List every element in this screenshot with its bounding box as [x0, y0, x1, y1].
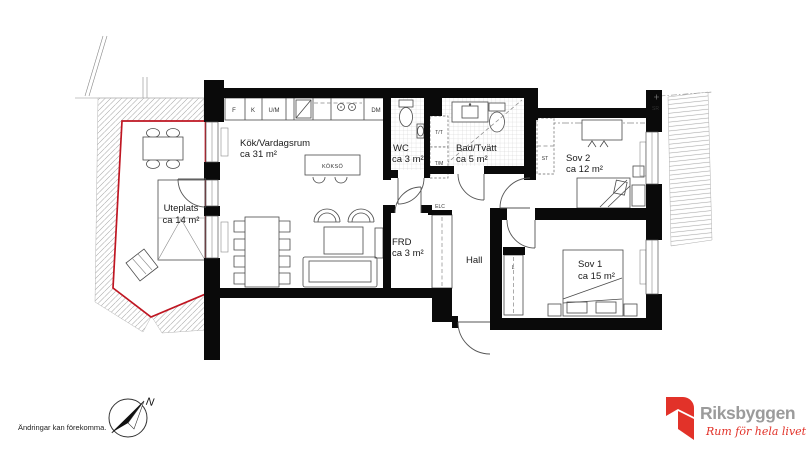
label-electrical: ELC [435, 204, 445, 210]
label-linen: L [512, 265, 515, 271]
brand-tagline: Rum för hela livet [705, 425, 807, 438]
storage-door [395, 187, 421, 213]
label-bedroom2-name: Sov 2 [566, 153, 590, 164]
bath-door [458, 174, 484, 200]
label-fridge: F [232, 108, 236, 114]
label-hall: Hall [466, 255, 482, 266]
label-north: N [145, 396, 155, 409]
label-bedroom2-area: ca 12 m² [566, 164, 603, 175]
label-dishwasher: DM [371, 108, 380, 114]
bedroom2-furniture [536, 118, 646, 208]
label-wc-area: ca 3 m² [392, 154, 424, 165]
radiator-living-2 [221, 222, 228, 252]
sink-icon [296, 100, 311, 118]
entrance-door [458, 322, 490, 354]
kitchen-counter [225, 98, 387, 120]
label-patio-area: ca 14 m² [163, 215, 200, 226]
floorplan-page: Kök/Vardagsrum ca 31 m² KÖKSÖ Uteplats c… [0, 0, 810, 455]
bedside-table-2 [632, 185, 645, 206]
disclaimer-text: Ändringar kan förekomma. [18, 423, 106, 432]
label-bedroom1-area: ca 15 m² [578, 271, 615, 282]
label-kitchen-living-area: ca 31 m² [240, 149, 277, 160]
label-oven-micro: U/M [269, 108, 280, 114]
label-wc-name: WC [393, 143, 409, 154]
radiator-sov1 [640, 250, 646, 284]
nightstand-right [624, 304, 637, 316]
label-island: KÖKSÖ [322, 163, 343, 170]
dining-table [234, 217, 290, 287]
tv-bench [375, 228, 383, 258]
label-bath-area: ca 5 m² [456, 154, 488, 165]
label-freezer: K [251, 108, 255, 114]
armchairs [314, 209, 374, 222]
label-storage-name: FRD [392, 237, 412, 248]
compass: N [109, 396, 155, 437]
label-storage-area: ca 3 m² [392, 248, 424, 259]
radiator-sov2 [640, 142, 646, 176]
radiator-living-1 [221, 128, 228, 156]
riksbyggen-logo: Riksbyggen Rum för hela livet [666, 397, 807, 440]
label-shaft: SR [652, 106, 659, 112]
bed-single [577, 178, 630, 208]
label-dryer: T/T [435, 130, 443, 136]
label-kitchen-living-name: Kök/Vardagsrum [240, 138, 310, 149]
nightstand-left [548, 304, 561, 316]
label-bedroom1-name: Sov 1 [578, 259, 602, 270]
wc-door [398, 178, 424, 204]
label-washer: T/M [435, 161, 444, 167]
coffee-table [324, 227, 363, 254]
bedroom2-door [500, 178, 530, 208]
label-wardrobe: ST [542, 156, 548, 162]
desk [582, 120, 622, 140]
floorplan-drawing: Kök/Vardagsrum ca 31 m² KÖKSÖ Uteplats c… [0, 0, 810, 455]
brand-name: Riksbyggen [700, 403, 795, 423]
hall-closet [432, 215, 452, 288]
label-bath-name: Bad/Tvätt [456, 143, 497, 154]
label-patio-name: Uteplats [164, 203, 199, 214]
linen-closet [504, 255, 523, 315]
riksbyggen-mark-icon [666, 397, 694, 440]
bedroom1-door [507, 220, 535, 248]
sofa [303, 257, 377, 287]
stove-icon [338, 104, 356, 111]
